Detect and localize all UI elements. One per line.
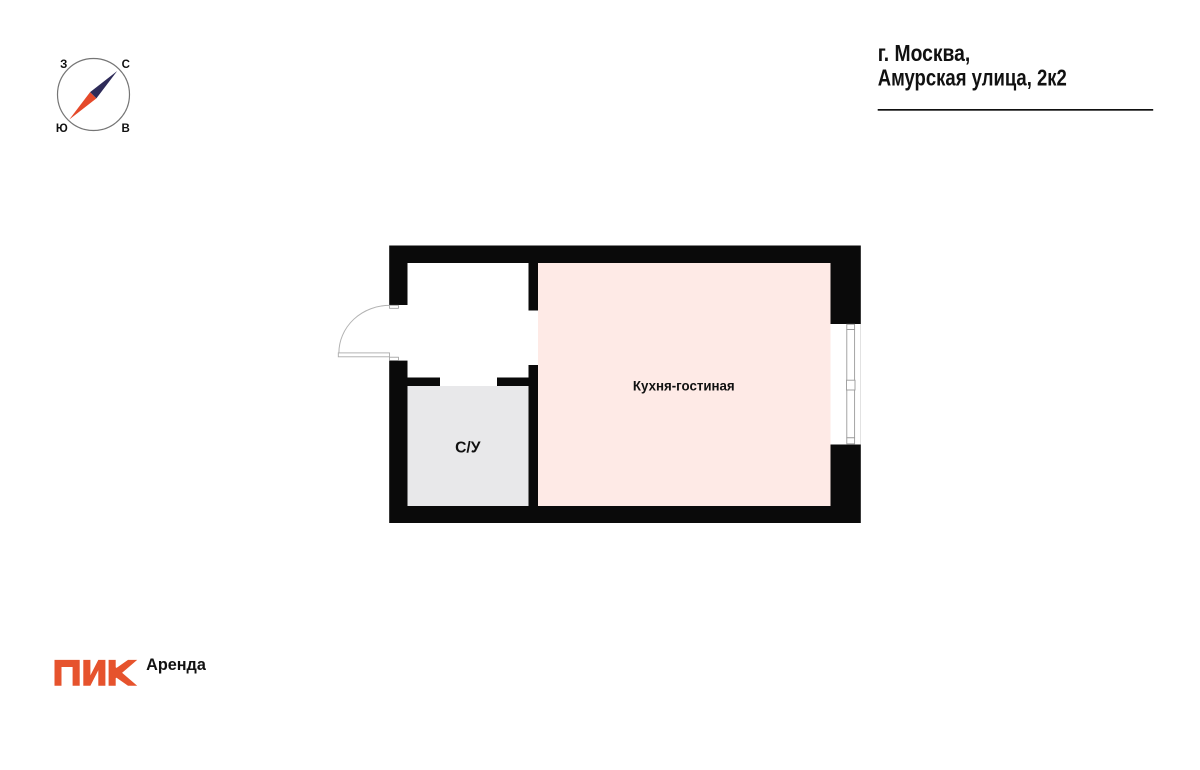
svg-text:С: С [122,59,130,71]
svg-text:г. Москва,: г. Москва, [878,40,971,66]
svg-text:Ю: Ю [56,123,68,135]
svg-text:В: В [121,123,129,135]
svg-text:С/У: С/У [455,439,481,456]
svg-text:З: З [60,59,67,71]
svg-text:Аренда: Аренда [146,655,207,674]
svg-text:Амурская улица, 2к2: Амурская улица, 2к2 [878,66,1067,92]
svg-text:Кухня-гостиная: Кухня-гостиная [633,378,735,393]
